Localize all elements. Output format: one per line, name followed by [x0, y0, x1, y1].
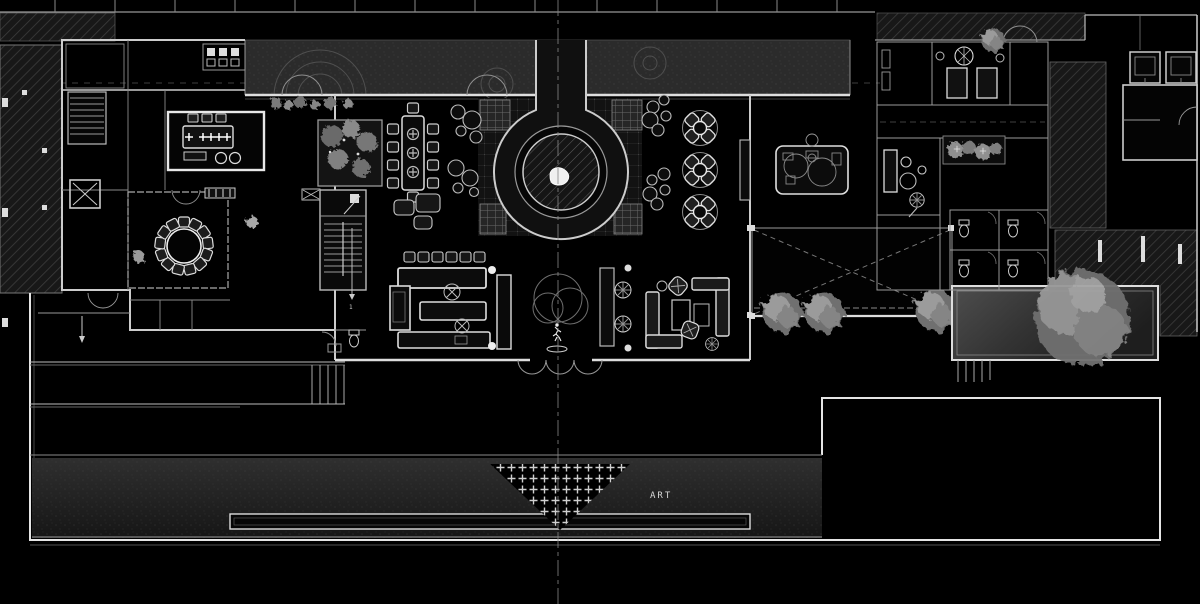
- small-tree-east: [981, 28, 1005, 52]
- banquette-east: [740, 140, 750, 200]
- stair-number-label: 1: [349, 304, 353, 311]
- interior-planter: [318, 120, 382, 186]
- floor-plan-sheet: 1: [0, 0, 1200, 604]
- art-label: ART: [650, 491, 672, 501]
- floor-plan-canvas: 1: [0, 0, 1200, 604]
- courtyard: [749, 225, 957, 332]
- planting-strip: [943, 136, 1005, 164]
- conference-room: [168, 112, 264, 170]
- x-dining-tables: [683, 111, 718, 230]
- east-room-by-elevators: [1123, 85, 1197, 160]
- linear-pool-south: [230, 514, 750, 529]
- east-elevator-cores: [1123, 52, 1197, 160]
- round-dining-table: [155, 217, 214, 275]
- corridor-statue: [246, 216, 258, 228]
